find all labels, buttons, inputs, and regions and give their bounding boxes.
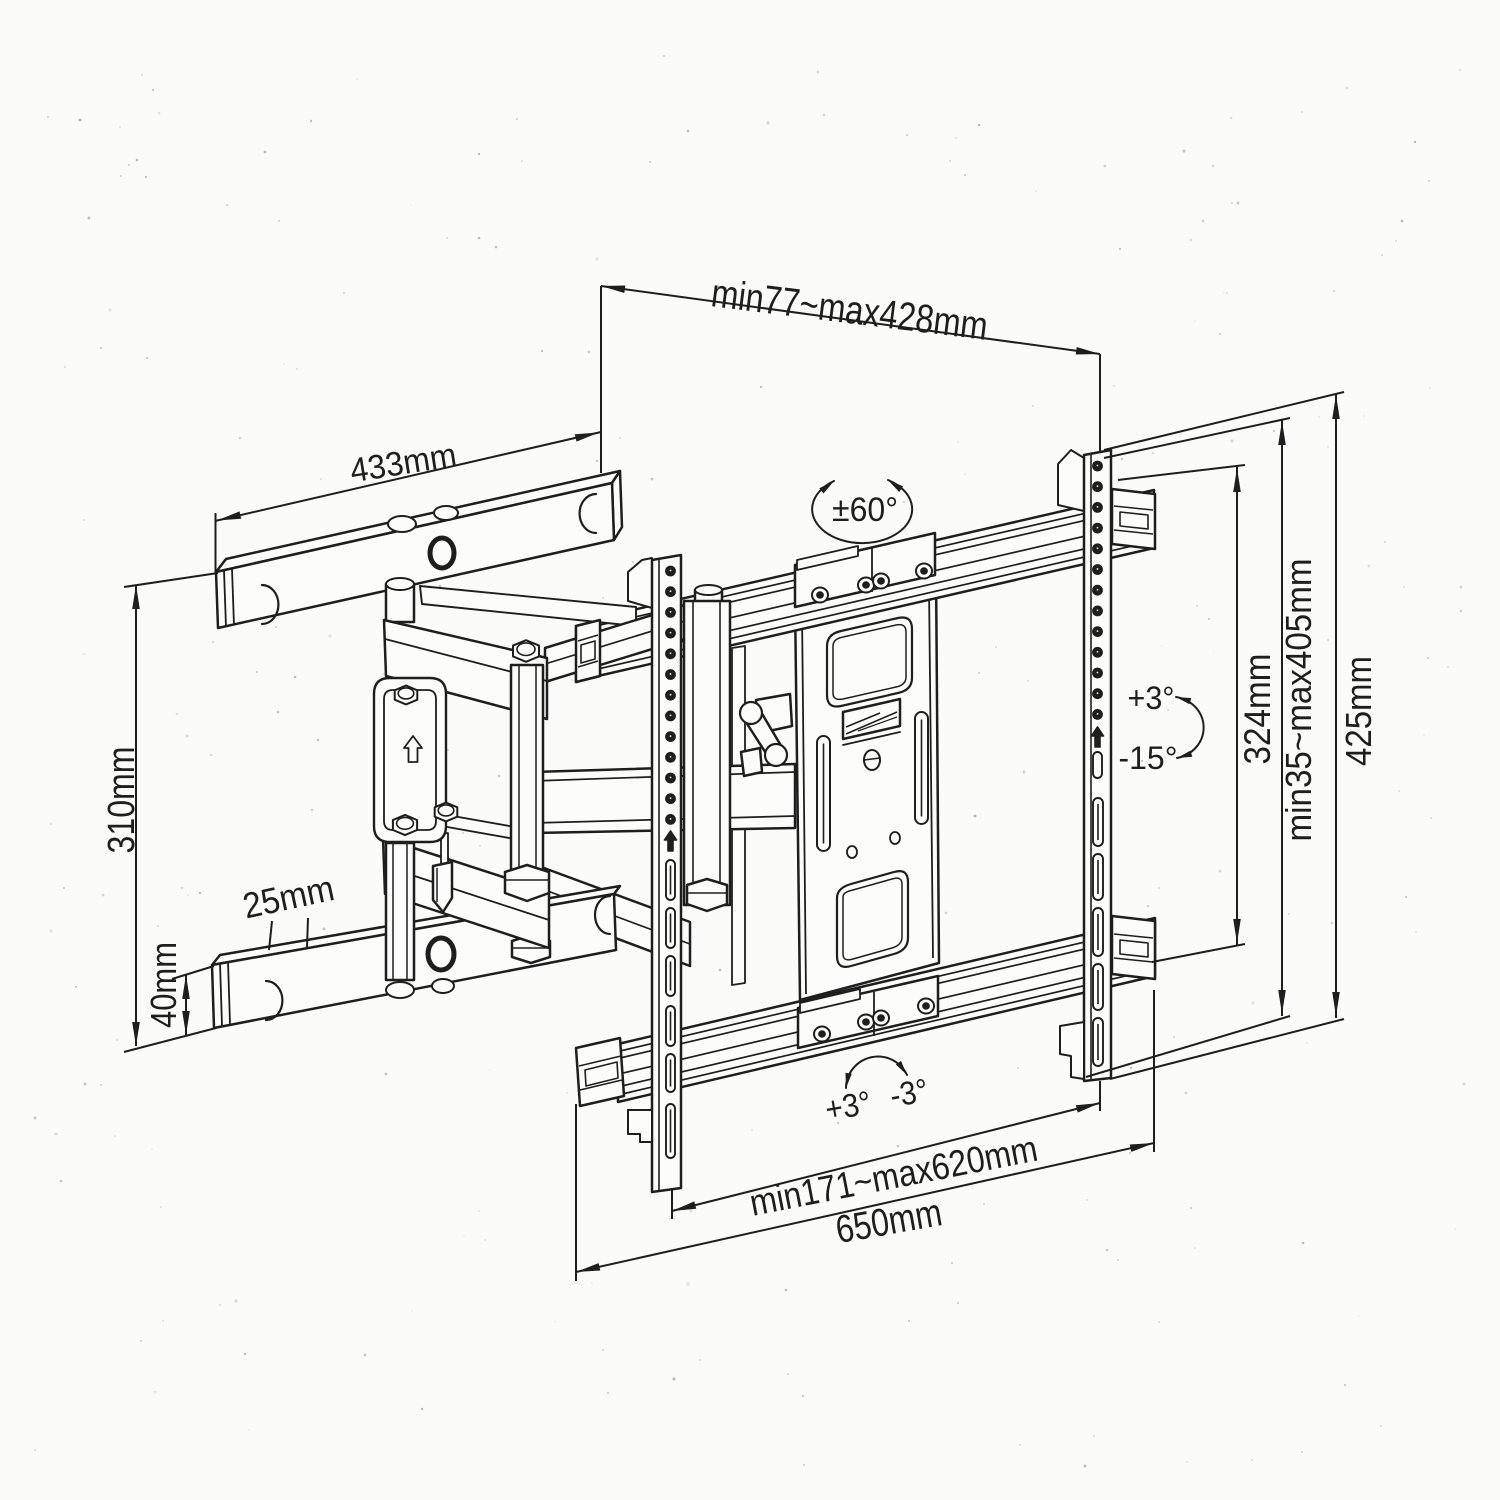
svg-text:425mm: 425mm bbox=[1338, 656, 1379, 766]
svg-text:40mm: 40mm bbox=[143, 942, 184, 1028]
svg-text:324mm: 324mm bbox=[1237, 654, 1278, 765]
svg-text:+3°: +3° bbox=[1128, 680, 1175, 716]
svg-text:-15°: -15° bbox=[1119, 740, 1178, 776]
svg-text:-3°: -3° bbox=[887, 1071, 931, 1114]
svg-text:±60°: ±60° bbox=[832, 491, 898, 529]
svg-text:min35~max405mm: min35~max405mm bbox=[1278, 559, 1319, 842]
svg-text:310mm: 310mm bbox=[101, 747, 143, 854]
svg-text:+3°: +3° bbox=[822, 1083, 874, 1127]
